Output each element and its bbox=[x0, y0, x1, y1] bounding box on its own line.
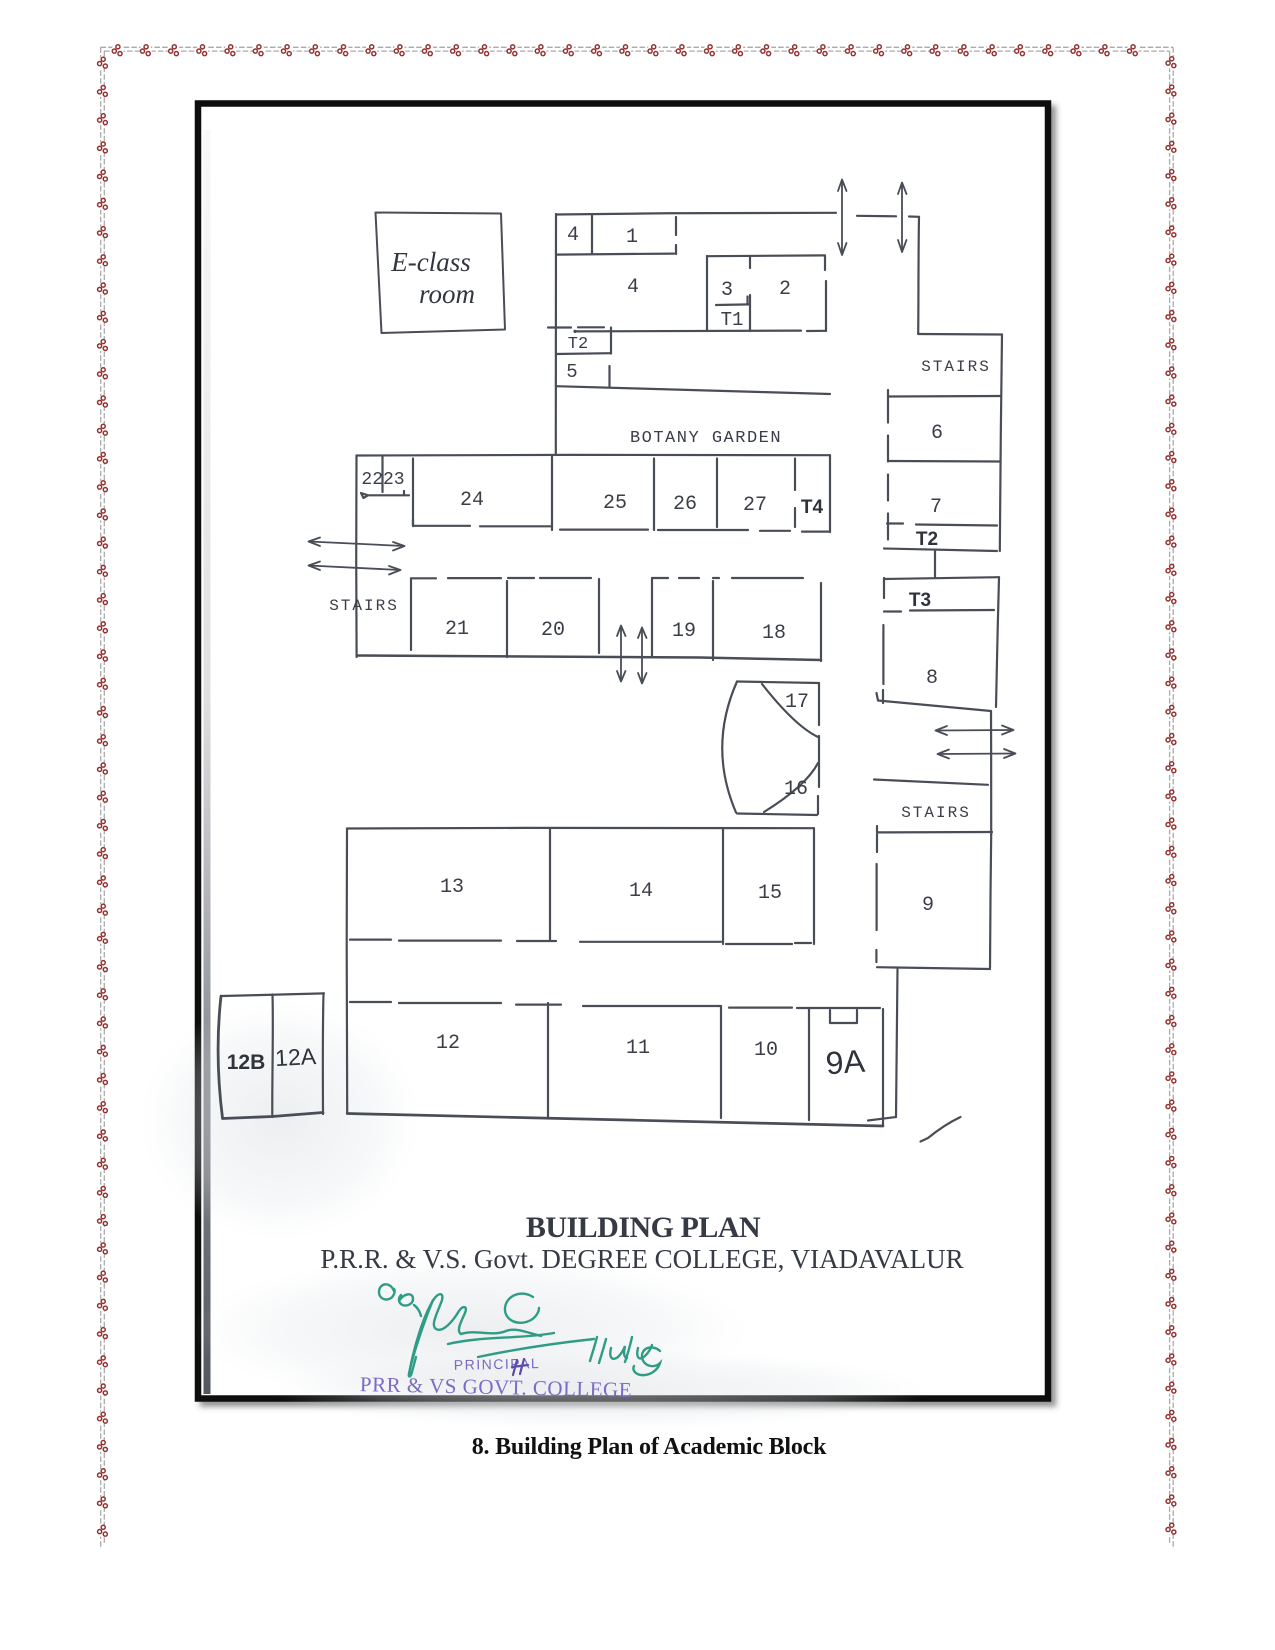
svg-text:T4: T4 bbox=[801, 497, 824, 518]
svg-text:T1: T1 bbox=[721, 309, 744, 331]
svg-text:T2: T2 bbox=[568, 335, 588, 354]
svg-text:4: 4 bbox=[627, 276, 639, 299]
svg-text:2223: 2223 bbox=[361, 470, 404, 490]
svg-text:12: 12 bbox=[436, 1032, 460, 1055]
svg-text:20: 20 bbox=[541, 619, 565, 642]
svg-text:9: 9 bbox=[922, 894, 934, 917]
svg-text:8: 8 bbox=[926, 667, 938, 690]
svg-text:14: 14 bbox=[629, 880, 653, 903]
svg-text:4: 4 bbox=[567, 224, 579, 247]
svg-text:25: 25 bbox=[603, 492, 627, 515]
svg-text:BUILDING PLAN: BUILDING PLAN bbox=[526, 1211, 761, 1244]
svg-text:1: 1 bbox=[626, 226, 638, 249]
svg-text:27: 27 bbox=[743, 494, 767, 517]
svg-text:10: 10 bbox=[754, 1039, 778, 1062]
svg-text:E-class: E-class bbox=[390, 247, 470, 277]
svg-text:STAIRS: STAIRS bbox=[329, 597, 399, 615]
svg-text:3: 3 bbox=[721, 279, 733, 302]
svg-text:room: room bbox=[419, 279, 475, 309]
svg-text:16: 16 bbox=[784, 778, 808, 801]
svg-text:17: 17 bbox=[785, 691, 809, 714]
svg-text:12A: 12A bbox=[274, 1043, 317, 1071]
svg-text:9A: 9A bbox=[824, 1043, 866, 1082]
svg-text:2: 2 bbox=[779, 278, 791, 301]
svg-text:26: 26 bbox=[673, 493, 697, 516]
svg-text:STAIRS: STAIRS bbox=[901, 804, 971, 822]
svg-text:15: 15 bbox=[758, 882, 782, 905]
svg-text:P.R.R. & V.S. Govt. DEGREE COL: P.R.R. & V.S. Govt. DEGREE COLLEGE, VIAD… bbox=[320, 1244, 963, 1274]
svg-text:19: 19 bbox=[672, 620, 696, 643]
svg-text:12B: 12B bbox=[227, 1051, 266, 1074]
svg-text:18: 18 bbox=[762, 622, 786, 645]
svg-text:STAIRS: STAIRS bbox=[921, 358, 991, 376]
svg-text:24: 24 bbox=[460, 489, 484, 512]
svg-text:T2: T2 bbox=[916, 529, 938, 550]
svg-text:6: 6 bbox=[931, 422, 943, 445]
svg-text:11: 11 bbox=[626, 1037, 650, 1060]
svg-text:13: 13 bbox=[440, 876, 464, 899]
svg-text:8. Building Plan of Academic B: 8. Building Plan of Academic Block bbox=[472, 1434, 827, 1460]
svg-text:7: 7 bbox=[930, 496, 942, 519]
svg-text:T3: T3 bbox=[909, 590, 931, 611]
svg-text:21: 21 bbox=[445, 618, 469, 641]
svg-text:5: 5 bbox=[566, 361, 577, 383]
svg-text:BOTANY GARDEN: BOTANY GARDEN bbox=[630, 429, 782, 448]
